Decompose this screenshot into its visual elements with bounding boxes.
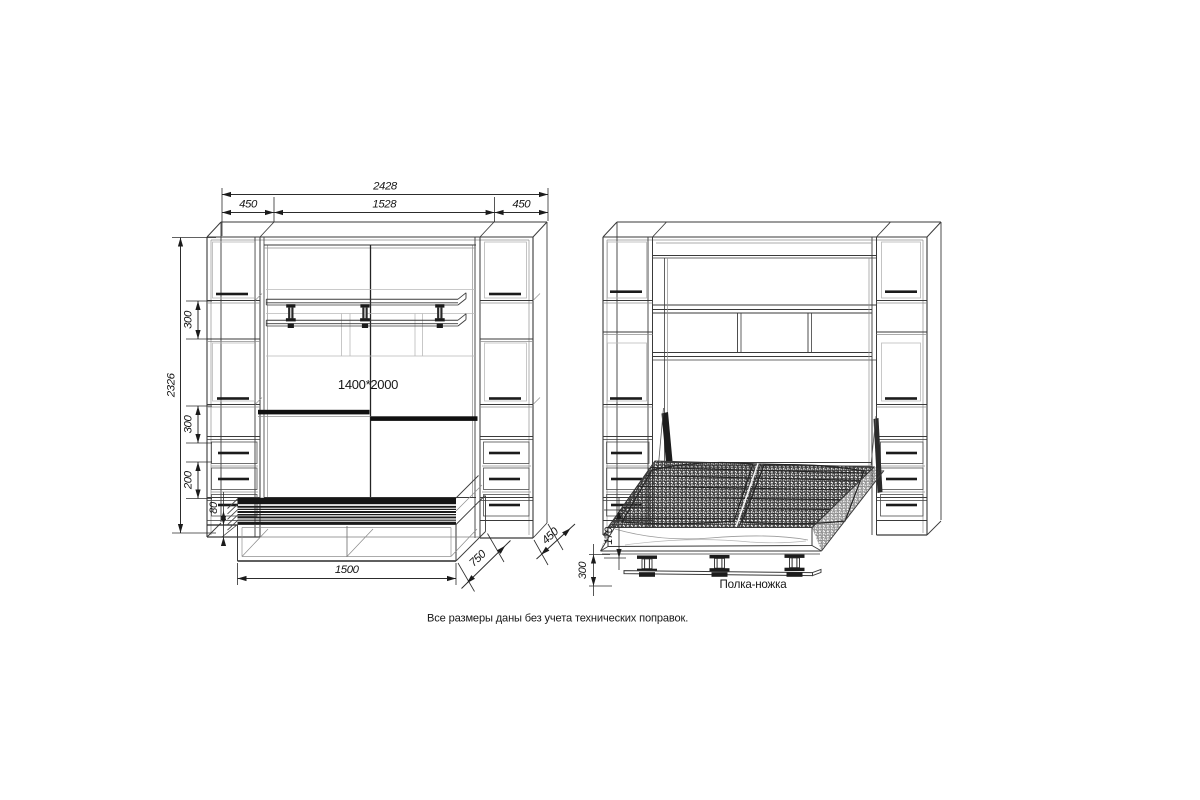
svg-text:300: 300 [577, 561, 589, 579]
svg-text:1528: 1528 [372, 199, 397, 211]
svg-text:170: 170 [603, 526, 615, 544]
svg-text:2326: 2326 [166, 372, 178, 398]
svg-text:450: 450 [239, 199, 258, 211]
svg-text:1400*2000: 1400*2000 [338, 377, 398, 392]
svg-text:Все размеры даны без учета тех: Все размеры даны без учета технических п… [427, 613, 688, 625]
svg-text:300: 300 [183, 310, 195, 329]
svg-text:80: 80 [208, 501, 220, 514]
svg-text:1500: 1500 [335, 564, 360, 576]
svg-text:200: 200 [183, 470, 195, 490]
svg-text:300: 300 [183, 415, 195, 434]
svg-text:2428: 2428 [372, 181, 398, 193]
svg-text:450: 450 [512, 199, 531, 211]
svg-text:Полка-ножка: Полка-ножка [720, 578, 788, 591]
